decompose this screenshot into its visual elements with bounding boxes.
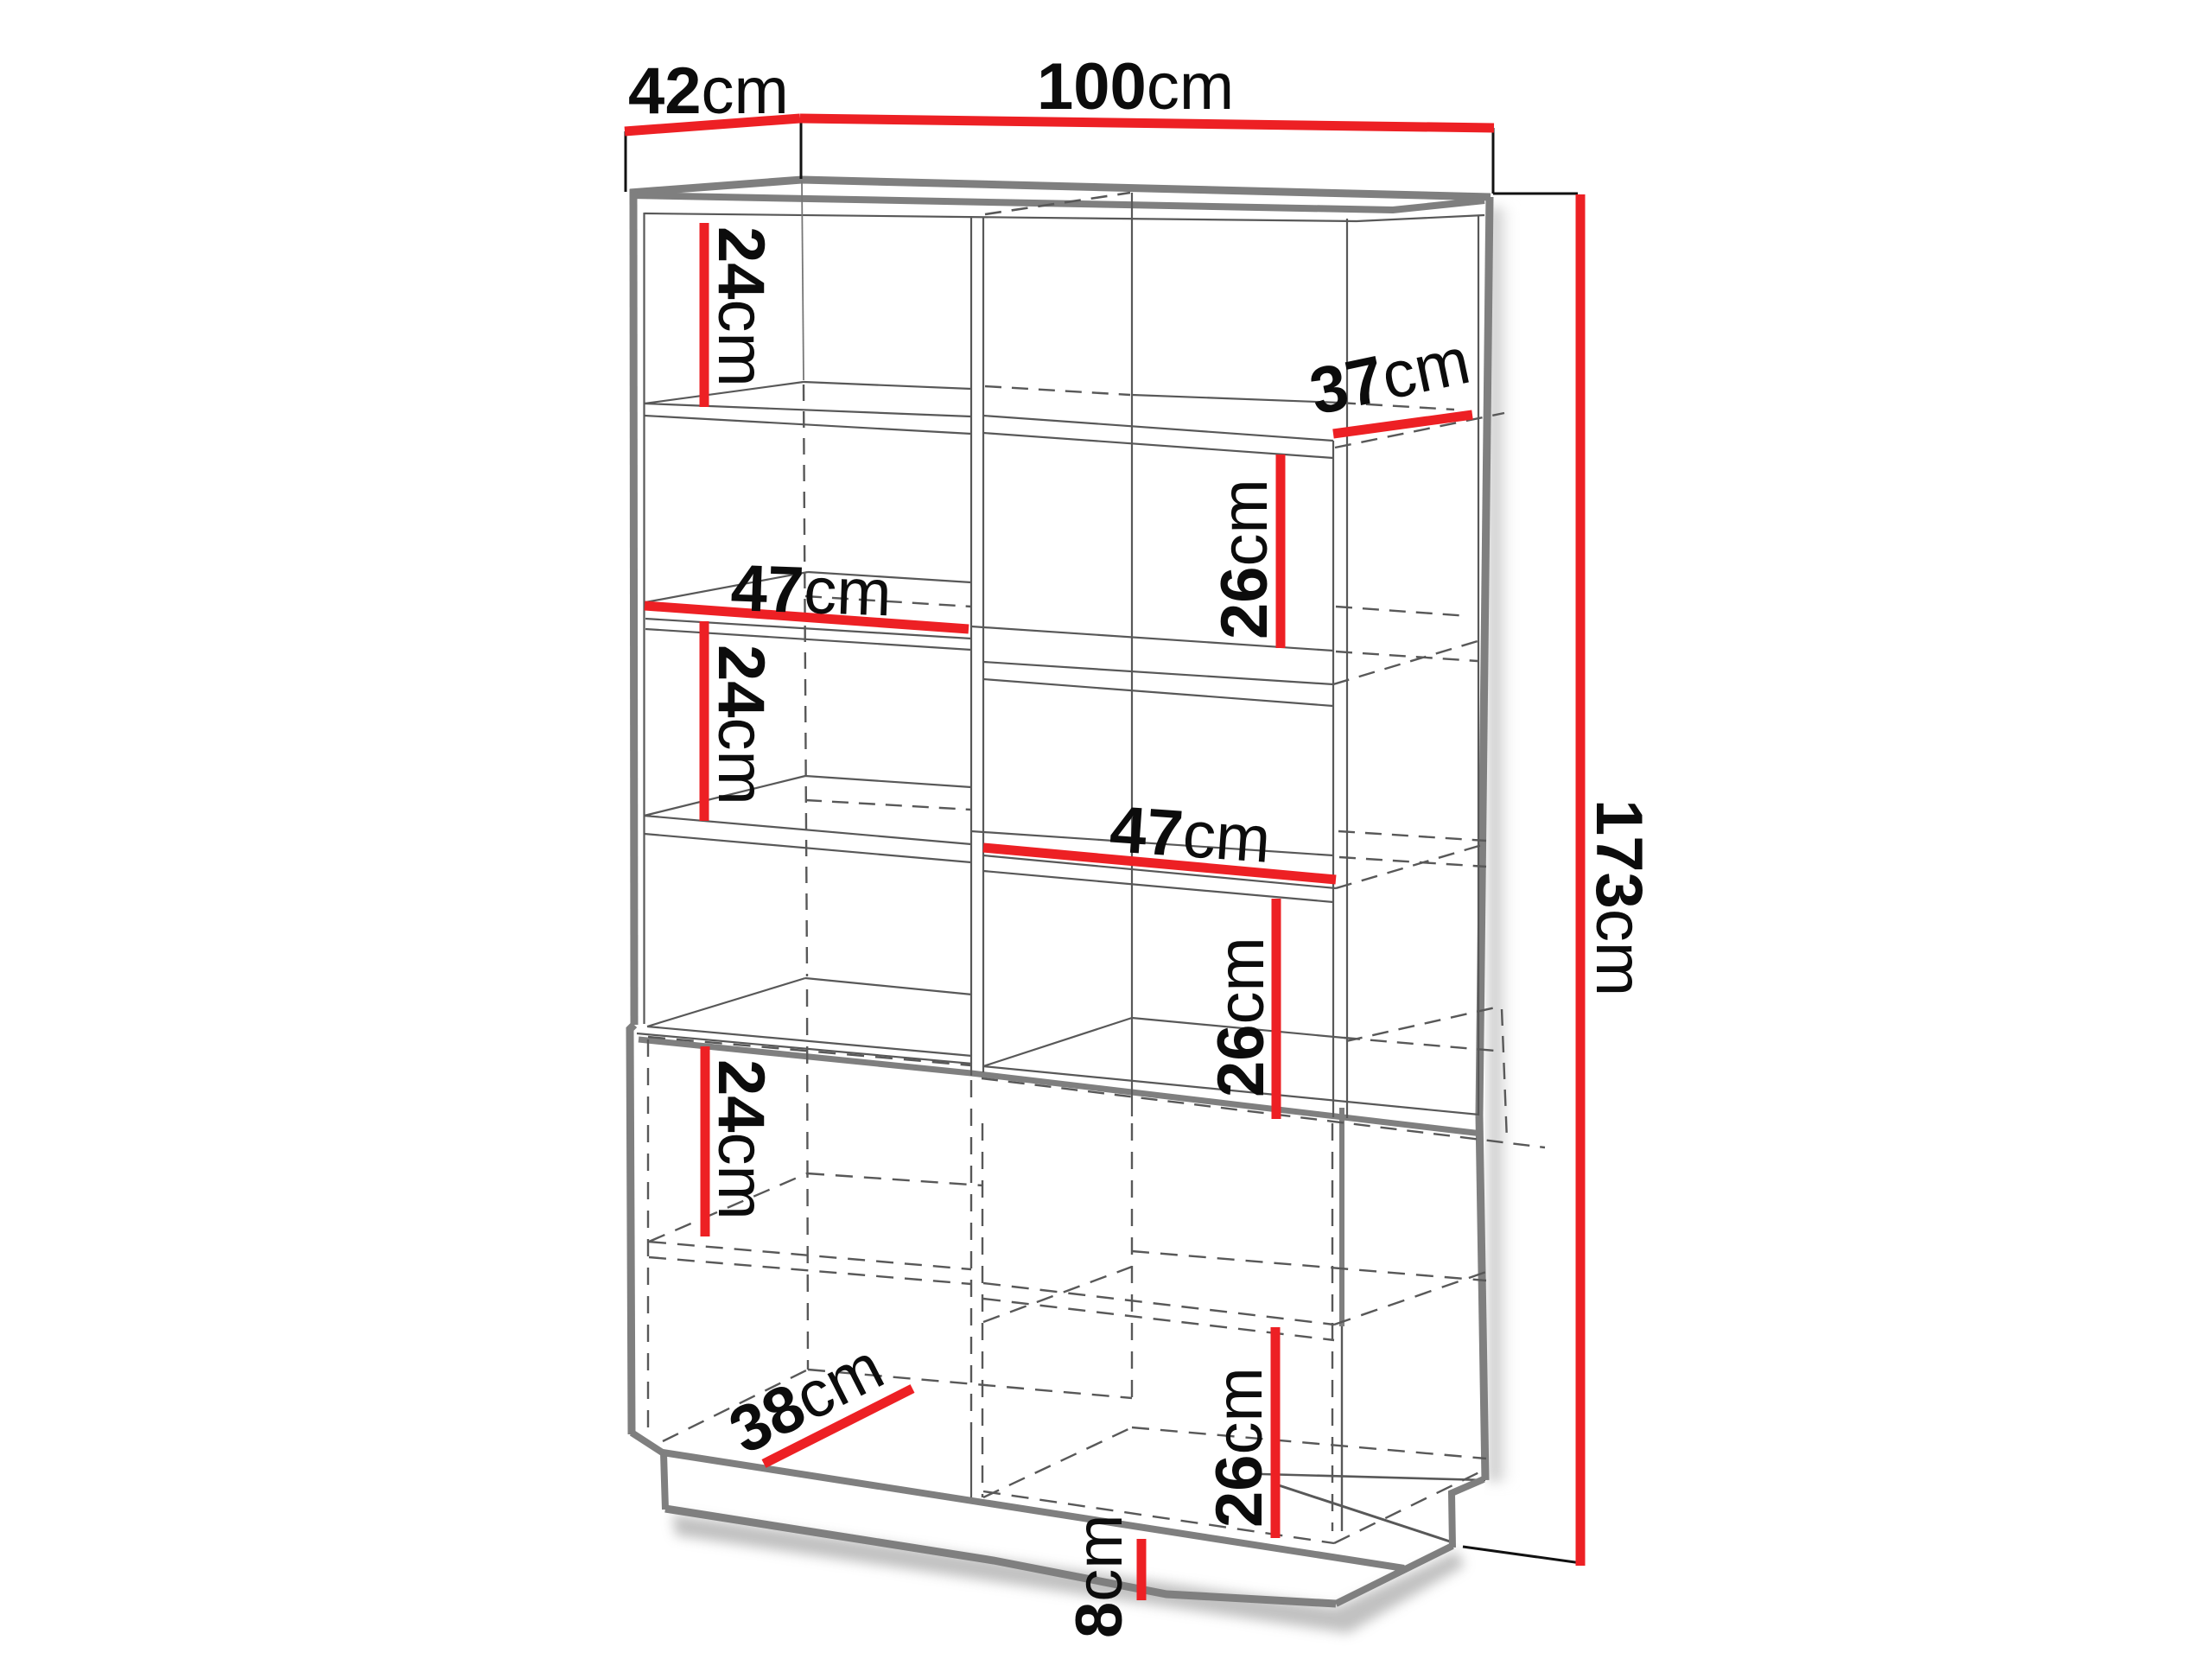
svg-text:24cm: 24cm: [704, 1059, 778, 1220]
svg-text:24cm: 24cm: [704, 226, 778, 387]
svg-text:47cm: 47cm: [729, 551, 893, 630]
svg-text:26cm: 26cm: [1203, 1367, 1276, 1528]
svg-text:26cm: 26cm: [1205, 937, 1278, 1097]
svg-text:47cm: 47cm: [1108, 792, 1273, 877]
svg-text:173cm: 173cm: [1582, 799, 1656, 996]
svg-text:24cm: 24cm: [704, 645, 778, 805]
svg-text:26cm: 26cm: [1208, 479, 1281, 639]
svg-text:42cm: 42cm: [628, 54, 789, 128]
svg-text:100cm: 100cm: [1037, 50, 1234, 124]
svg-text:8cm: 8cm: [1063, 1514, 1136, 1638]
